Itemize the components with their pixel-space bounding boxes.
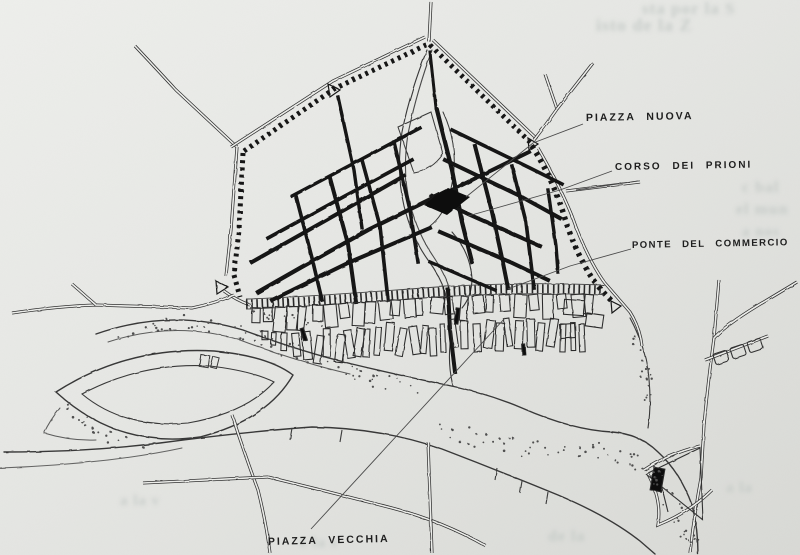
- bleedthrough-fragment: a la: [726, 480, 753, 496]
- stipple-dot: [499, 438, 501, 440]
- stipple-dot: [328, 333, 330, 335]
- stipple-dot: [293, 317, 295, 319]
- stipple-dot: [653, 483, 655, 485]
- stipple-dot: [617, 462, 619, 464]
- stipple-dot: [261, 344, 263, 346]
- stipple-dot: [183, 314, 185, 316]
- stipple-dot: [648, 375, 650, 377]
- stipple-dot: [188, 327, 190, 329]
- stipple-dot: [107, 441, 109, 443]
- stipple-dot: [679, 503, 681, 505]
- stipple-dot: [295, 356, 297, 358]
- stipple-dot: [268, 314, 270, 316]
- stipple-dot: [631, 464, 633, 466]
- building-solid: [522, 344, 526, 355]
- stipple-dot: [352, 366, 353, 367]
- stipple-dot: [234, 326, 236, 328]
- stipple-dot: [191, 326, 193, 328]
- stipple-dot: [97, 431, 99, 433]
- stipple-dot: [417, 392, 419, 394]
- stipple-dot: [296, 357, 298, 359]
- stipple-dot: [680, 536, 682, 538]
- stipple-dot: [557, 451, 559, 453]
- stipple-dot: [683, 534, 685, 536]
- stipple-dot: [169, 328, 171, 330]
- stipple-dot: [388, 375, 390, 377]
- stipple-dot: [692, 519, 693, 520]
- stipple-dot: [92, 431, 95, 434]
- scanned-page: sta por la Sisto de la Zc balel muna nos…: [0, 0, 800, 555]
- stipple-dot: [161, 328, 163, 330]
- stipple-dot: [655, 479, 658, 482]
- stipple-dot: [271, 315, 273, 317]
- stipple-dot: [376, 375, 378, 377]
- stipple-dot: [467, 443, 469, 445]
- stipple-dot: [399, 381, 400, 382]
- stipple-dot: [226, 335, 228, 337]
- stipple-dot: [242, 338, 244, 340]
- stipple-dot: [105, 435, 107, 437]
- stipple-dot: [592, 444, 594, 446]
- stipple-dot: [694, 538, 696, 540]
- stipple-dot: [351, 364, 353, 366]
- stipple-dot: [292, 346, 294, 348]
- stipple-dot: [641, 360, 643, 362]
- stipple-dot: [152, 323, 154, 325]
- stipple-dot: [307, 361, 309, 363]
- stipple-dot: [345, 373, 347, 375]
- stipple-dot: [634, 335, 636, 337]
- stipple-dot: [646, 379, 648, 381]
- stipple-dot: [369, 380, 372, 383]
- stipple-dot: [632, 338, 634, 340]
- stipple-dot: [145, 326, 147, 328]
- stipple-dot: [321, 363, 323, 365]
- stipple-dot: [650, 374, 652, 376]
- stipple-dot: [651, 378, 653, 380]
- stipple-dot: [631, 456, 633, 458]
- stipple-dot: [673, 521, 675, 523]
- stipple-dot: [272, 338, 274, 340]
- stipple-dot: [86, 416, 87, 417]
- stipple-dot: [620, 451, 622, 453]
- stipple-dot: [449, 437, 451, 439]
- stipple-dot: [579, 446, 581, 448]
- stipple-dot: [512, 437, 514, 439]
- stipple-dot: [492, 441, 494, 443]
- stipple-dot: [307, 322, 309, 324]
- stipple-dot: [306, 324, 307, 325]
- stipple-dot: [451, 428, 453, 430]
- stipple-dot: [67, 408, 69, 410]
- label-piazza-nuova: PIAZZA NUOVA: [586, 110, 694, 124]
- stipple-dot: [687, 539, 689, 541]
- stipple-dot: [327, 361, 329, 363]
- stipple-dot: [640, 349, 642, 351]
- stipple-dot: [648, 385, 650, 387]
- stipple-dot: [532, 441, 534, 443]
- stipple-dot: [264, 335, 266, 337]
- bleedthrough-fragment: isto de la Z: [596, 15, 693, 35]
- stipple-dot: [483, 442, 485, 444]
- stipple-dot: [697, 539, 699, 541]
- stipple-dot: [125, 436, 127, 438]
- stipple-dot: [633, 453, 635, 455]
- stipple-dot: [117, 336, 119, 338]
- stipple-dot: [268, 318, 270, 320]
- stipple-dot: [288, 346, 289, 347]
- stipple-dot: [654, 477, 656, 479]
- stipple-dot: [289, 343, 291, 345]
- stipple-dot: [132, 332, 135, 335]
- paper-grain: [0, 0, 800, 555]
- stipple-dot: [677, 517, 679, 519]
- stipple-dot: [584, 451, 587, 454]
- stipple-dot: [83, 421, 85, 423]
- stipple-dot: [677, 520, 679, 522]
- stipple-dot: [685, 530, 687, 532]
- stipple-dot: [603, 447, 605, 449]
- stipple-dot: [544, 447, 546, 449]
- stipple-dot: [372, 379, 374, 381]
- stipple-dot: [652, 471, 655, 474]
- stipple-dot: [661, 474, 663, 476]
- stipple-dot: [284, 315, 286, 317]
- stipple-dot: [645, 397, 647, 399]
- stipple-dot: [321, 366, 323, 368]
- stipple-dot: [239, 337, 241, 339]
- stipple-dot: [563, 449, 565, 451]
- stipple-dot: [648, 368, 650, 370]
- stipple-dot: [68, 402, 70, 404]
- bleedthrough-fragment: a la v: [120, 493, 160, 509]
- stipple-dot: [607, 454, 608, 455]
- stipple-dot: [109, 431, 111, 433]
- stipple-dot: [385, 388, 387, 390]
- stipple-dot: [662, 504, 664, 506]
- stipple-dot: [630, 453, 632, 455]
- stipple-dot: [690, 541, 692, 543]
- stipple-dot: [354, 378, 355, 379]
- stipple-dot: [352, 374, 354, 376]
- stipple-dot: [439, 423, 441, 425]
- stipple-dot: [641, 468, 643, 470]
- stipple-dot: [693, 534, 695, 536]
- stipple-dot: [598, 442, 600, 444]
- stipple-dot: [358, 375, 360, 377]
- stipple-dot: [127, 336, 129, 338]
- stipple-dot: [520, 455, 522, 457]
- bleedthrough-fragment: el mun: [736, 201, 789, 218]
- stipple-dot: [459, 441, 462, 444]
- bleedthrough-fragment: c bal: [742, 179, 779, 196]
- stipple-dot: [78, 419, 80, 421]
- stipple-dot: [653, 466, 655, 468]
- bleedthrough-fragment: de la: [548, 528, 585, 545]
- stipple-dot: [671, 492, 673, 494]
- stipple-dot: [118, 440, 120, 442]
- stipple-dot: [685, 538, 687, 540]
- stipple-dot: [207, 321, 209, 323]
- stipple-dot: [91, 427, 93, 429]
- stipple-dot: [529, 447, 531, 449]
- stipple-dot: [632, 343, 634, 345]
- stipple-dot: [485, 433, 487, 435]
- stipple-dot: [154, 325, 156, 327]
- stipple-dot: [503, 450, 506, 453]
- stipple-dot: [280, 355, 282, 357]
- stipple-dot: [155, 327, 157, 329]
- stipple-dot: [84, 424, 87, 427]
- stipple-dot: [528, 453, 530, 455]
- stipple-dot: [615, 460, 616, 461]
- stipple-dot: [629, 463, 631, 465]
- stipple-dot: [509, 438, 511, 440]
- stipple-dot: [410, 385, 412, 387]
- stipple-dot: [592, 446, 595, 449]
- stipple-dot: [564, 446, 566, 448]
- stipple-dot: [637, 454, 639, 456]
- stipple-dot: [441, 428, 443, 430]
- stipple-dot: [240, 325, 242, 327]
- stipple-dot: [646, 394, 648, 396]
- stipple-dot: [396, 378, 398, 380]
- stipple-dot: [650, 394, 651, 395]
- stipple-dot: [646, 366, 648, 368]
- stipple-dot: [681, 507, 683, 509]
- stipple-dot: [357, 368, 359, 370]
- city-map-figure: sta por la Sisto de la Zc balel muna nos…: [0, 0, 800, 555]
- stipple-dot: [336, 335, 338, 337]
- stipple-dot: [203, 326, 204, 327]
- stipple-dot: [67, 404, 69, 406]
- stipple-dot: [321, 325, 323, 327]
- stipple-dot: [658, 470, 661, 473]
- stipple-dot: [503, 442, 505, 444]
- stipple-dot: [644, 399, 646, 401]
- stipple-dot: [245, 332, 247, 334]
- stipple-dot: [578, 455, 581, 458]
- stipple-dot: [260, 331, 262, 333]
- stipple-dot: [648, 372, 650, 374]
- stipple-dot: [298, 344, 300, 346]
- stipple-dot: [475, 433, 477, 435]
- stipple-dot: [266, 317, 268, 319]
- stipple-dot: [208, 330, 210, 332]
- stipple-dot: [645, 368, 647, 370]
- stipple-dot: [371, 385, 373, 387]
- stipple-dot: [547, 454, 549, 456]
- stipple-dot: [641, 370, 643, 372]
- stipple-dot: [525, 450, 527, 452]
- stipple-dot: [639, 375, 641, 377]
- stipple-dot: [291, 314, 293, 316]
- stipple-dot: [636, 330, 638, 332]
- stipple-dot: [666, 489, 668, 491]
- stipple-dot: [635, 469, 637, 471]
- stipple-dot: [263, 313, 266, 316]
- stipple-dot: [372, 375, 375, 378]
- stipple-dot: [165, 318, 167, 320]
- stipple-dot: [252, 310, 254, 312]
- stipple-dot: [196, 325, 197, 326]
- stipple-dot: [253, 339, 255, 341]
- stipple-dot: [210, 319, 213, 322]
- stipple-dot: [468, 426, 470, 428]
- stipple-dot: [656, 483, 658, 485]
- stipple-dot: [536, 440, 538, 442]
- stipple-dot: [250, 307, 252, 309]
- stipple-dot: [142, 446, 144, 448]
- stipple-dot: [157, 329, 160, 332]
- stipple-dot: [72, 416, 75, 419]
- stipple-dot: [337, 366, 339, 368]
- stipple-dot: [360, 370, 362, 372]
- stipple-dot: [271, 346, 273, 348]
- stipple-dot: [473, 446, 475, 448]
- stipple-dot: [597, 457, 599, 459]
- stipple-dot: [322, 355, 324, 357]
